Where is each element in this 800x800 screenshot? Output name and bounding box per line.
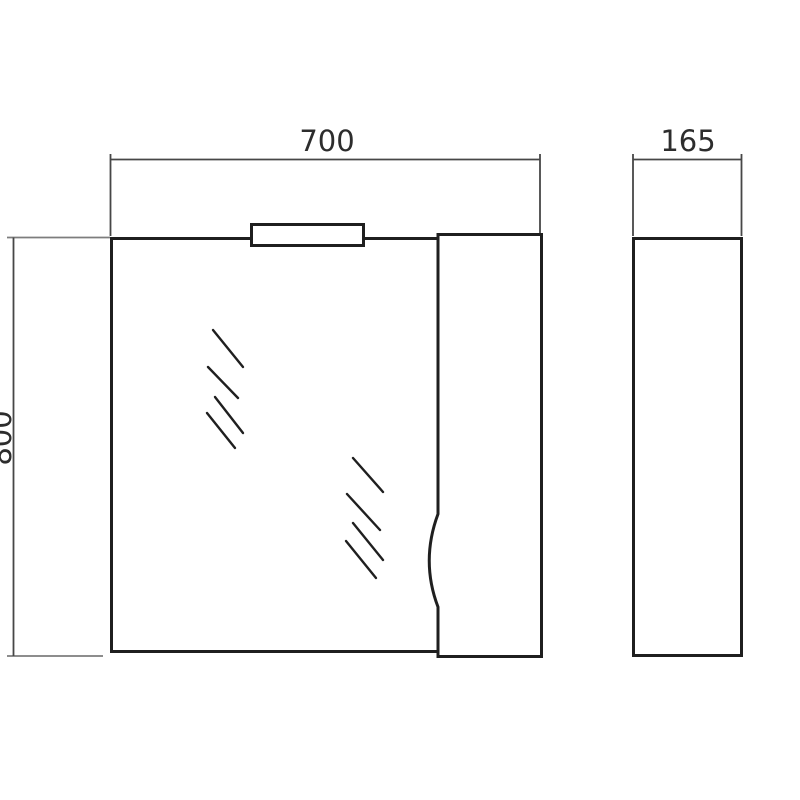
depth-dimension-label: 165	[660, 124, 715, 158]
shine-stroke	[208, 367, 238, 398]
width-dimension: 700	[111, 124, 541, 236]
lamp-fixture	[252, 225, 364, 246]
cabinet-body-outline	[112, 239, 439, 652]
shine-stroke	[353, 458, 383, 492]
width-dimension-label: 700	[299, 124, 354, 158]
mirror-cabinet-drawing: 700 165 800	[0, 0, 800, 800]
depth-dimension: 165	[633, 124, 742, 236]
side-view	[634, 239, 742, 656]
shine-stroke	[213, 330, 243, 367]
height-dimension: 800	[0, 238, 110, 657]
mirror-shine-upper-group	[207, 330, 243, 448]
side-profile-outline	[634, 239, 742, 656]
mirror-shine-lower-group	[346, 458, 383, 578]
front-view	[112, 225, 542, 657]
height-dimension-label: 800	[0, 410, 18, 465]
door-panel	[429, 235, 541, 657]
technical-drawing-page: 700 165 800	[0, 0, 800, 800]
shine-stroke	[347, 494, 380, 530]
